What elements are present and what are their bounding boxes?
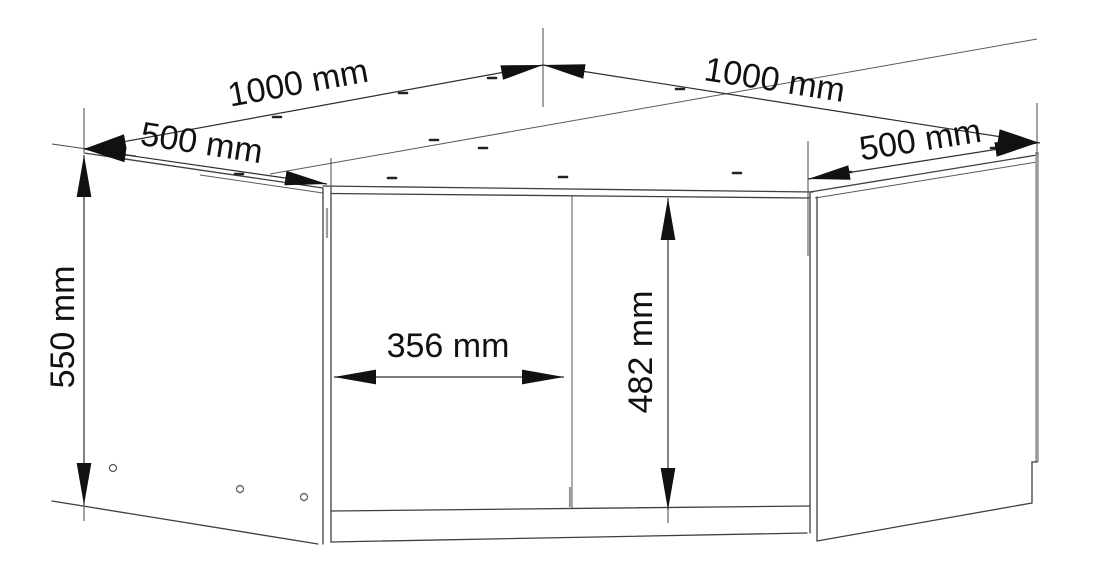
dimension-labels: 1000 mm 1000 mm 500 mm 500 mm 550 mm 356…	[44, 50, 984, 413]
label-door-height: 482 mm	[622, 291, 660, 414]
left-panel-bottom-edge	[52, 501, 318, 544]
right-side-panel	[817, 152, 1037, 541]
top-panel-edges	[84, 39, 1037, 198]
label-door-width: 356 mm	[387, 327, 510, 365]
cabinet-drawing: 1000 mm 1000 mm 500 mm 500 mm 550 mm 356…	[0, 0, 1100, 573]
right-panel-notch	[1032, 462, 1037, 503]
label-right-side-depth: 500 mm	[857, 112, 984, 169]
diagram-canvas: 1000 mm 1000 mm 500 mm 500 mm 550 mm 356…	[0, 0, 1100, 573]
label-left-side-depth: 500 mm	[138, 115, 265, 171]
bottom-rail-edge	[331, 533, 807, 542]
label-cabinet-height: 550 mm	[44, 266, 82, 389]
left-panel-holes	[110, 465, 308, 501]
cabinet-outline	[52, 39, 1037, 544]
label-top-left-width: 1000 mm	[225, 52, 371, 115]
extension-lines	[52, 28, 1037, 523]
right-panel-bottom-edge	[817, 503, 1032, 541]
left-side-panel	[52, 189, 323, 544]
